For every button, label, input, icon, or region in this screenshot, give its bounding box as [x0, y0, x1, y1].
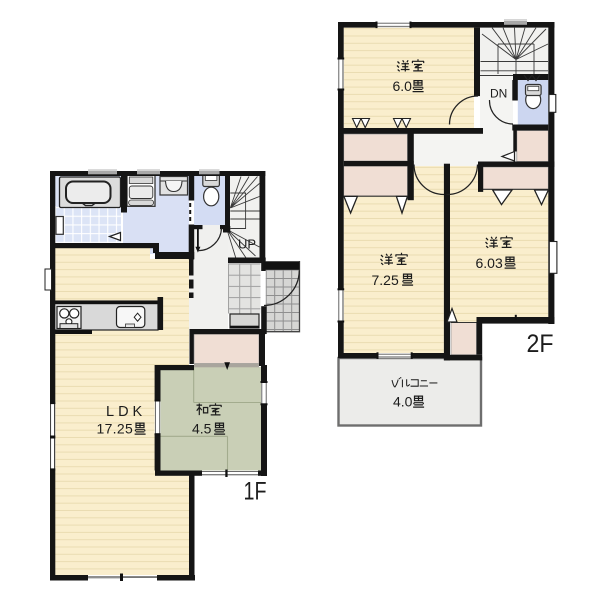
svg-text:1F: 1F — [244, 478, 267, 506]
svg-text:UP: UP — [238, 237, 256, 252]
svg-text:2F: 2F — [527, 330, 554, 358]
svg-text:7.25: 7.25 — [372, 272, 399, 288]
svg-text:4.0: 4.0 — [393, 394, 413, 410]
svg-text:LDK: LDK — [106, 404, 146, 420]
svg-text:17.25: 17.25 — [97, 421, 134, 437]
svg-text:6.03: 6.03 — [476, 255, 503, 271]
svg-text:6.0: 6.0 — [393, 78, 413, 94]
svg-text:DN: DN — [490, 87, 507, 101]
svg-text:4.5: 4.5 — [192, 421, 212, 437]
